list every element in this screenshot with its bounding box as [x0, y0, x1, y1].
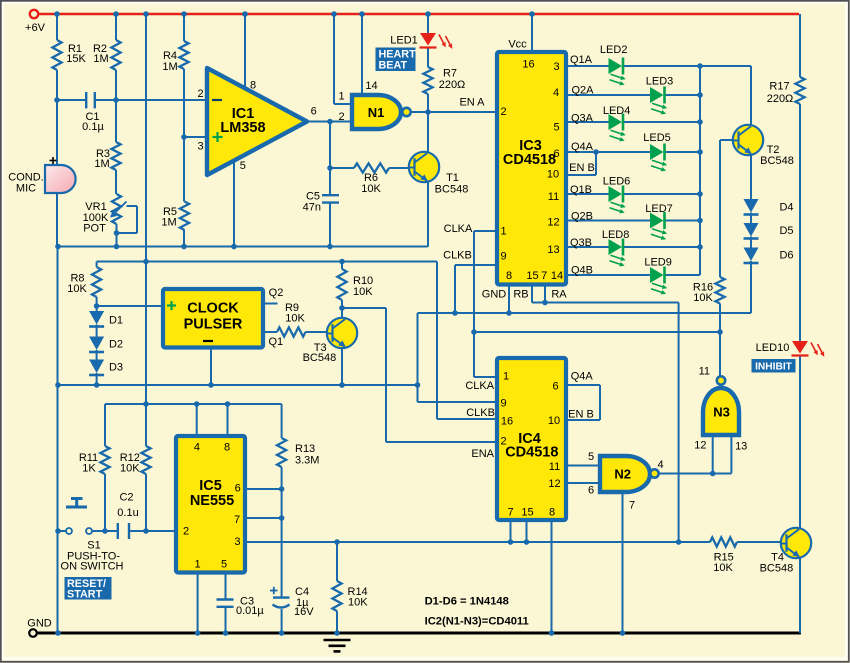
svg-text:START: START	[67, 589, 103, 601]
svg-text:1: 1	[500, 226, 506, 238]
svg-text:7: 7	[629, 499, 635, 511]
svg-text:Q4A: Q4A	[571, 370, 594, 382]
svg-text:1M: 1M	[94, 158, 109, 170]
svg-text:1: 1	[194, 559, 200, 571]
svg-text:CD4518: CD4518	[505, 444, 558, 460]
svg-text:D4: D4	[779, 202, 793, 214]
svg-text:0.1µ: 0.1µ	[82, 121, 104, 133]
svg-text:Q1: Q1	[268, 336, 283, 348]
svg-text:Q3A: Q3A	[571, 112, 594, 124]
svg-text:BC548: BC548	[760, 155, 794, 167]
svg-text:LED9: LED9	[644, 257, 672, 269]
svg-text:10K: 10K	[693, 292, 713, 304]
svg-text:9: 9	[500, 398, 506, 410]
svg-text:15: 15	[526, 270, 538, 282]
svg-text:BEAT: BEAT	[379, 60, 408, 72]
svg-text:LED6: LED6	[603, 176, 631, 188]
svg-text:LED10: LED10	[756, 342, 790, 354]
svg-text:CLKA: CLKA	[465, 380, 494, 392]
svg-text:CLKA: CLKA	[444, 223, 473, 235]
svg-text:6: 6	[553, 148, 559, 160]
svg-text:ENA: ENA	[471, 448, 494, 460]
svg-text:MIC: MIC	[16, 183, 36, 195]
svg-text:1K: 1K	[82, 463, 96, 475]
svg-text:14: 14	[551, 270, 563, 282]
svg-text:T1: T1	[446, 172, 459, 184]
svg-text:8: 8	[506, 270, 512, 282]
svg-text:220Ω: 220Ω	[767, 93, 794, 105]
svg-text:RB: RB	[513, 289, 528, 301]
svg-text:CLKB: CLKB	[466, 407, 495, 419]
svg-text:CD4518: CD4518	[503, 152, 556, 168]
svg-text:Q2B: Q2B	[571, 211, 593, 223]
svg-text:5: 5	[240, 160, 246, 172]
svg-text:10K: 10K	[67, 283, 87, 295]
svg-text:10: 10	[548, 415, 560, 427]
svg-text:INHIBIT: INHIBIT	[755, 362, 793, 373]
svg-text:LED8: LED8	[602, 229, 630, 241]
svg-text:16V: 16V	[294, 606, 314, 618]
svg-text:10K: 10K	[348, 597, 368, 609]
svg-text:C2: C2	[119, 492, 133, 504]
svg-text:EN A: EN A	[459, 97, 485, 109]
svg-text:R7: R7	[443, 68, 457, 80]
svg-text:5: 5	[221, 559, 227, 571]
svg-text:15: 15	[521, 507, 533, 519]
svg-text:10K: 10K	[120, 463, 140, 475]
svg-text:11: 11	[548, 191, 559, 203]
svg-text:Q2A: Q2A	[571, 85, 594, 97]
svg-text:D1-D6 = 1N4148: D1-D6 = 1N4148	[425, 595, 509, 607]
svg-text:Q1B: Q1B	[570, 184, 592, 196]
svg-text:CLKB: CLKB	[443, 250, 472, 262]
svg-text:Q4B: Q4B	[571, 265, 593, 277]
svg-text:47n: 47n	[303, 202, 321, 214]
svg-text:0.1u: 0.1u	[117, 507, 138, 519]
svg-text:IC2(N1-N3)=CD4011: IC2(N1-N3)=CD4011	[425, 616, 529, 628]
svg-text:R17: R17	[769, 81, 789, 93]
svg-text:8: 8	[549, 507, 555, 519]
svg-text:RA: RA	[551, 289, 567, 301]
svg-text:11: 11	[699, 366, 710, 378]
svg-text:EN B: EN B	[568, 408, 594, 420]
svg-text:6: 6	[588, 484, 594, 496]
svg-text:8: 8	[224, 441, 230, 453]
svg-text:LED7: LED7	[645, 203, 673, 215]
svg-text:10K: 10K	[285, 313, 305, 325]
svg-text:D1: D1	[109, 315, 123, 327]
svg-text:D6: D6	[779, 249, 793, 261]
svg-text:0.01µ: 0.01µ	[236, 605, 264, 617]
svg-text:3: 3	[234, 536, 240, 548]
svg-text:4: 4	[194, 441, 200, 453]
svg-text:7: 7	[541, 270, 547, 282]
svg-text:13: 13	[547, 244, 559, 256]
svg-text:16: 16	[501, 416, 513, 428]
svg-text:5: 5	[588, 451, 594, 463]
svg-text:NE555: NE555	[190, 493, 234, 509]
svg-text:N2: N2	[614, 467, 631, 482]
svg-text:CLOCK: CLOCK	[187, 301, 239, 317]
svg-text:16: 16	[522, 59, 534, 71]
svg-text:3: 3	[197, 141, 203, 153]
svg-text:N1: N1	[368, 105, 385, 120]
svg-text:LM358: LM358	[220, 120, 265, 136]
svg-text:15K: 15K	[66, 53, 86, 65]
svg-text:EN B: EN B	[569, 162, 595, 174]
svg-text:3.3M: 3.3M	[295, 455, 319, 467]
svg-text:1: 1	[338, 91, 344, 103]
svg-text:10K: 10K	[713, 562, 733, 574]
svg-text:BC548: BC548	[435, 184, 469, 196]
svg-text:ON SWITCH: ON SWITCH	[61, 561, 124, 573]
svg-text:12: 12	[547, 217, 559, 229]
svg-text:10K: 10K	[353, 286, 373, 298]
svg-text:6: 6	[552, 380, 558, 392]
svg-text:3: 3	[553, 61, 559, 73]
svg-text:6: 6	[235, 482, 241, 494]
svg-text:4: 4	[553, 87, 559, 99]
svg-text:7: 7	[234, 514, 240, 526]
svg-text:2: 2	[500, 106, 506, 118]
svg-text:D3: D3	[109, 362, 123, 374]
svg-text:11: 11	[549, 461, 560, 473]
svg-text:13: 13	[735, 440, 747, 452]
svg-text:LED2: LED2	[600, 44, 628, 56]
svg-text:Q4A: Q4A	[571, 141, 594, 153]
svg-text:12: 12	[694, 440, 706, 452]
svg-text:POT: POT	[83, 223, 106, 235]
svg-text:IC5: IC5	[199, 478, 222, 494]
svg-text:R13: R13	[295, 443, 315, 455]
svg-text:LED5: LED5	[643, 132, 671, 144]
svg-text:6: 6	[311, 106, 317, 118]
svg-text:Q3B: Q3B	[570, 237, 592, 249]
svg-text:1: 1	[503, 371, 509, 383]
svg-text:BC548: BC548	[760, 562, 794, 574]
svg-text:LED1: LED1	[390, 35, 418, 47]
svg-text:LED3: LED3	[646, 76, 674, 88]
svg-text:2: 2	[197, 88, 203, 100]
svg-text:5: 5	[553, 122, 559, 134]
svg-text:12: 12	[548, 478, 560, 490]
svg-text:2: 2	[338, 111, 344, 123]
svg-text:9: 9	[500, 251, 506, 263]
svg-text:8: 8	[250, 80, 256, 92]
svg-text:D2: D2	[109, 339, 123, 351]
svg-text:LED4: LED4	[603, 105, 631, 117]
svg-text:1M: 1M	[162, 61, 177, 73]
svg-text:Q1A: Q1A	[570, 54, 593, 66]
svg-text:10: 10	[547, 169, 559, 181]
svg-text:D5: D5	[779, 225, 793, 237]
svg-text:+6V: +6V	[25, 22, 46, 34]
svg-text:GND: GND	[27, 618, 52, 630]
svg-text:1M: 1M	[161, 217, 176, 229]
svg-text:Q2: Q2	[269, 287, 284, 299]
svg-text:7: 7	[507, 507, 513, 519]
svg-text:14: 14	[365, 80, 377, 92]
svg-text:BC548: BC548	[303, 352, 337, 364]
svg-text:N3: N3	[713, 404, 730, 419]
svg-text:1M: 1M	[93, 53, 108, 65]
svg-text:Vcc: Vcc	[508, 38, 527, 50]
svg-text:2: 2	[183, 526, 189, 538]
svg-text:4: 4	[658, 459, 664, 471]
svg-text:GND: GND	[482, 289, 507, 301]
svg-text:220Ω: 220Ω	[439, 79, 466, 91]
svg-text:PULSER: PULSER	[184, 317, 243, 333]
svg-text:10K: 10K	[361, 183, 381, 195]
svg-text:2: 2	[500, 435, 506, 447]
